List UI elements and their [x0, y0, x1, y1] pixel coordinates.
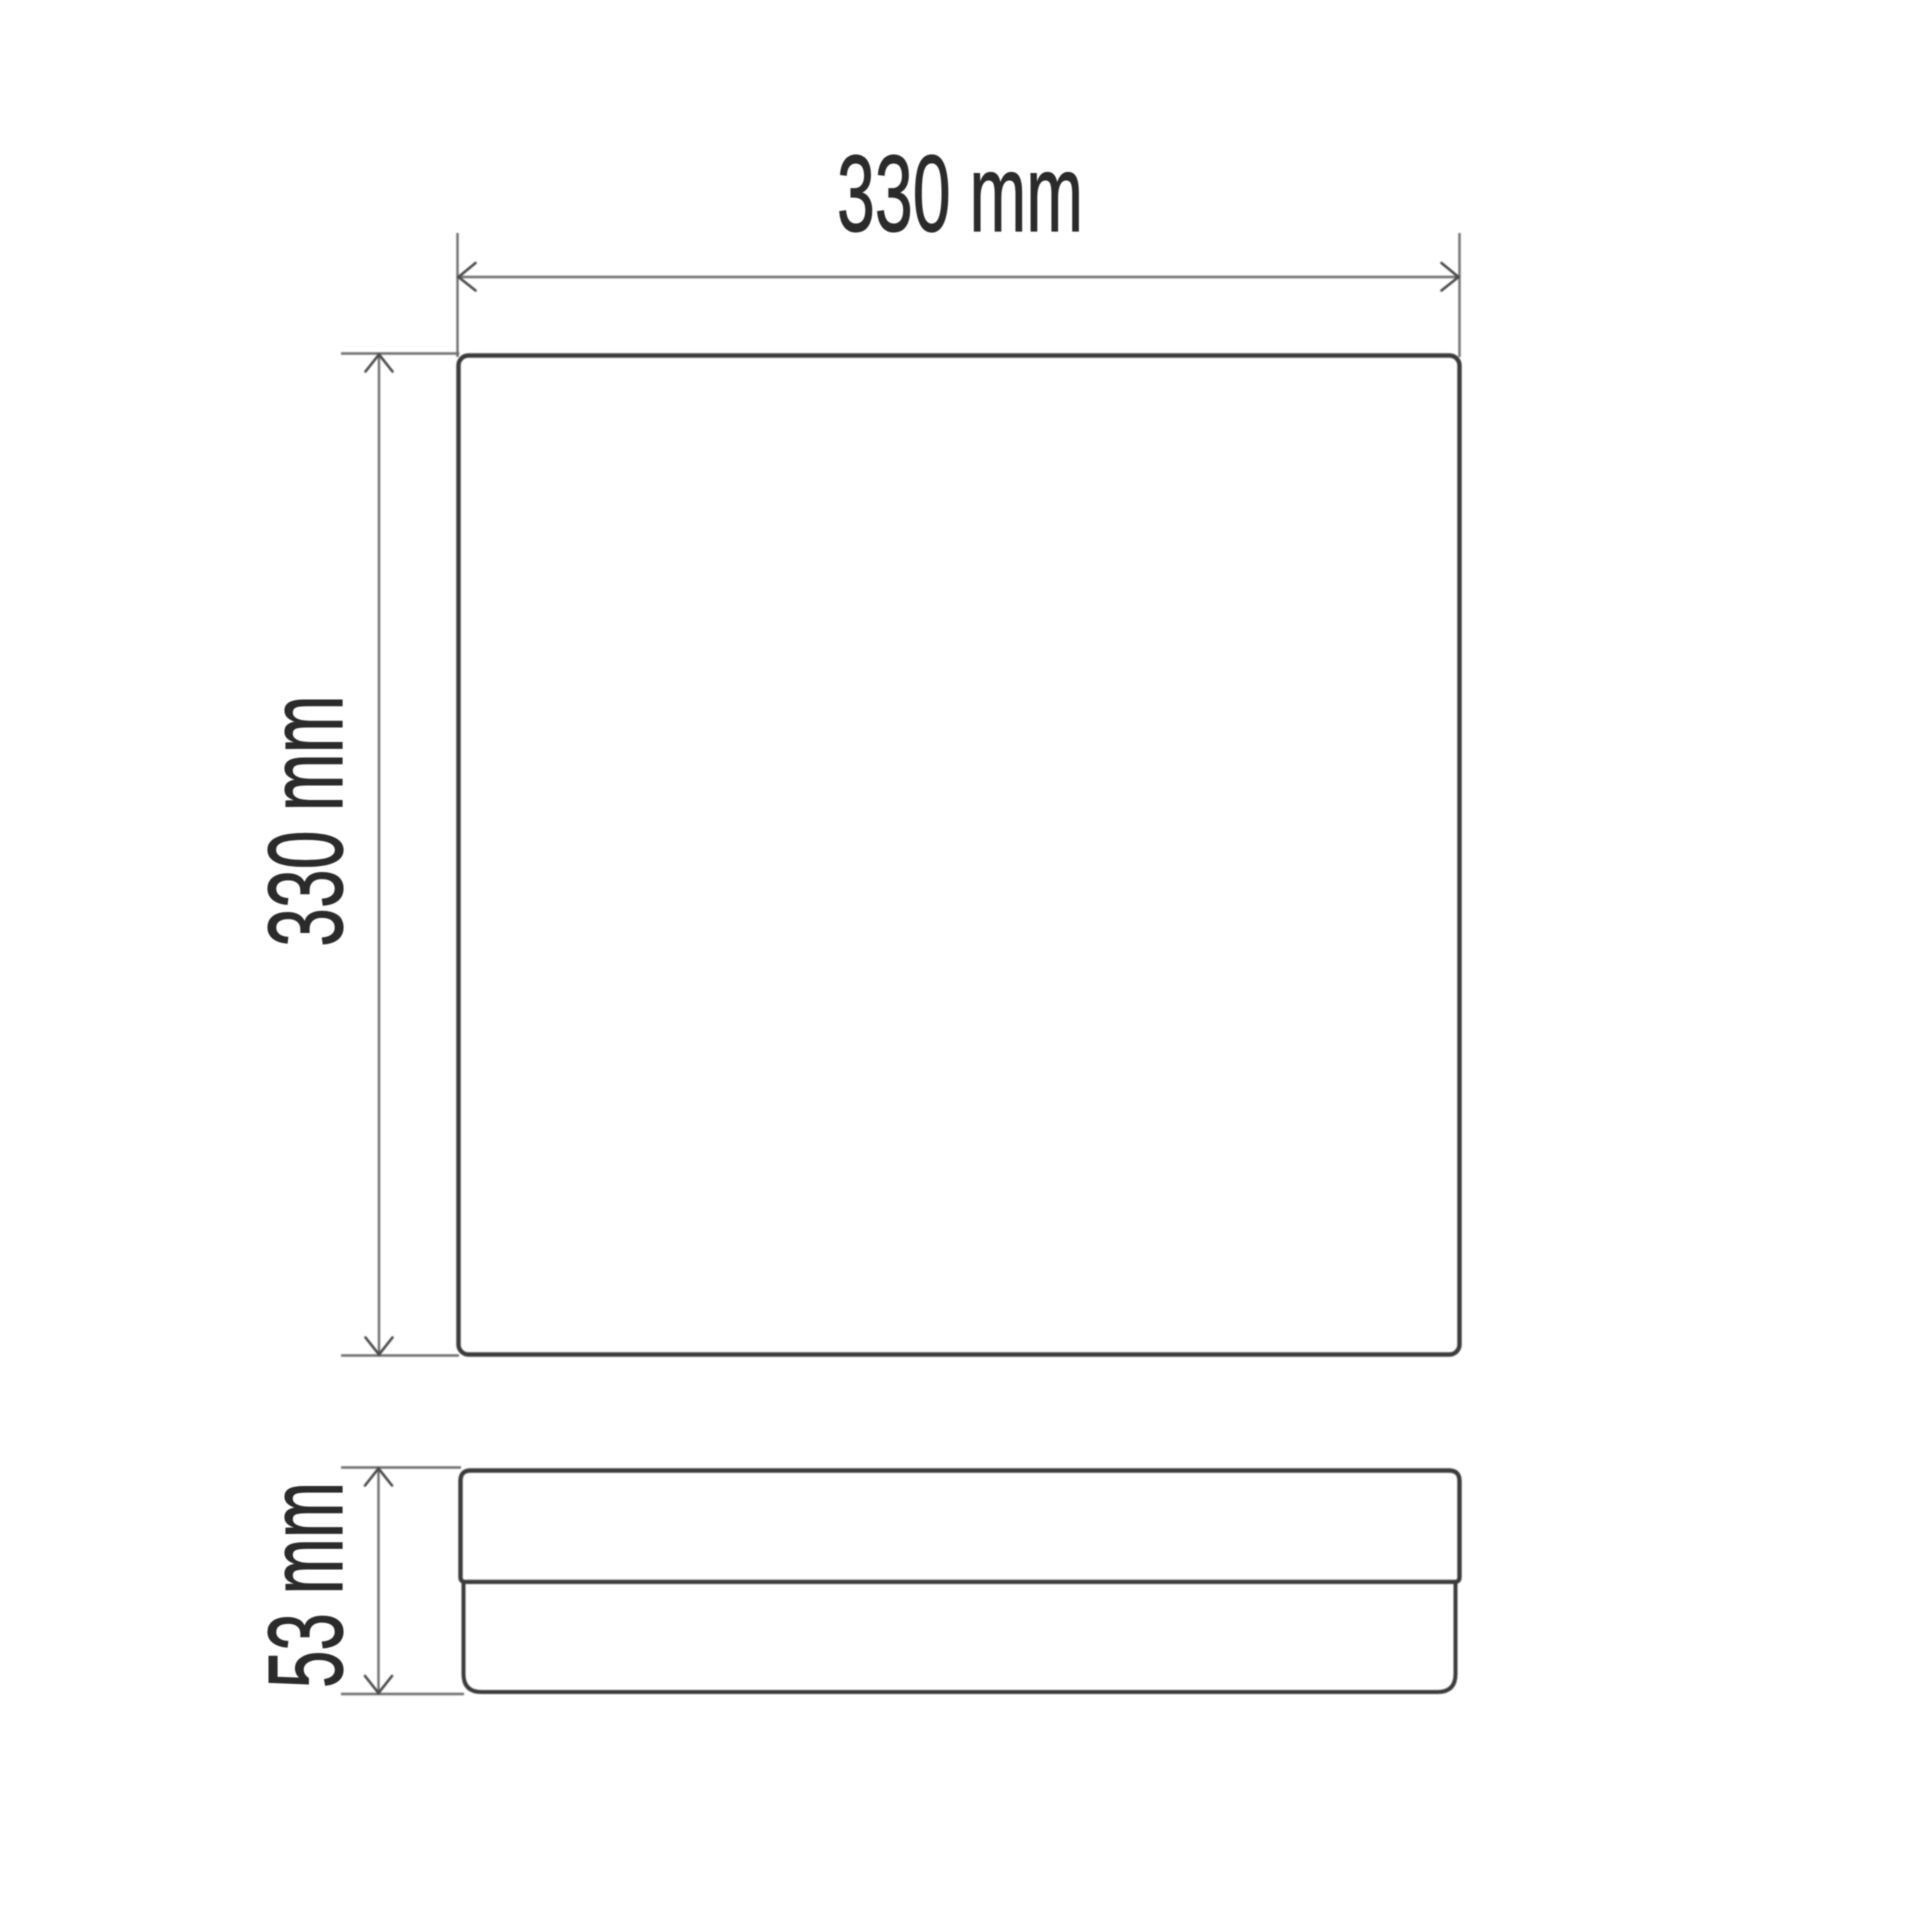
- svg-text:330 mm: 330 mm: [837, 134, 1083, 255]
- svg-text:53 mm: 53 mm: [247, 1482, 365, 1688]
- svg-text:330 mm: 330 mm: [246, 695, 364, 947]
